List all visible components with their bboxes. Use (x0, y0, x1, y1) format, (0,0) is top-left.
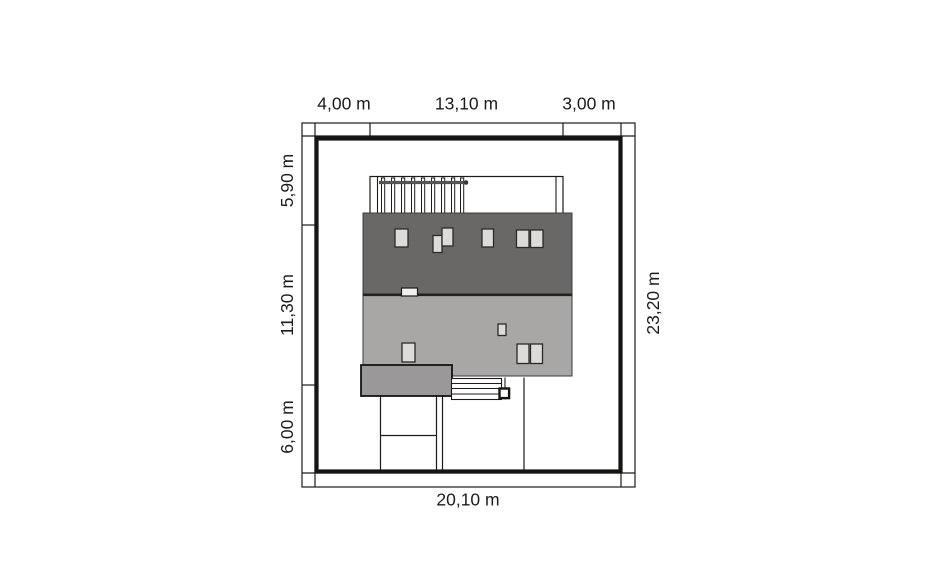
skylight (517, 344, 529, 364)
door-mat (500, 389, 510, 399)
roof-upper-plane (363, 213, 572, 296)
skylight (517, 230, 530, 248)
garage-roof (361, 365, 452, 396)
skylight (482, 229, 494, 247)
terrace-pergola (370, 177, 563, 214)
dim-label-left-middle: 11,30 m (277, 274, 297, 336)
skylight (531, 230, 544, 248)
dim-label-top-middle: 13,10 m (435, 94, 498, 114)
dim-label-top-right: 3,00 m (562, 94, 616, 114)
pergola-beam-end (464, 180, 469, 185)
skylight (531, 344, 543, 364)
chimney (402, 288, 418, 296)
skylight (402, 343, 415, 362)
site-plan-drawing: 4,00 m 13,10 m 3,00 m 5,90 m 11,30 m 6,0… (0, 0, 940, 587)
skylight (433, 236, 442, 253)
skylight (395, 229, 408, 247)
dim-label-left-top: 5,90 m (277, 154, 297, 208)
dim-label-bottom: 20,10 m (436, 490, 499, 510)
skylight (442, 228, 453, 246)
entrance-steps (452, 378, 506, 400)
dim-label-right: 23,20 m (643, 271, 663, 334)
dim-label-left-bottom: 6,00 m (277, 400, 297, 454)
dim-label-top-left: 4,00 m (317, 94, 371, 114)
skylight (498, 324, 506, 336)
site-plan: 4,00 m 13,10 m 3,00 m 5,90 m 11,30 m 6,0… (0, 0, 940, 587)
